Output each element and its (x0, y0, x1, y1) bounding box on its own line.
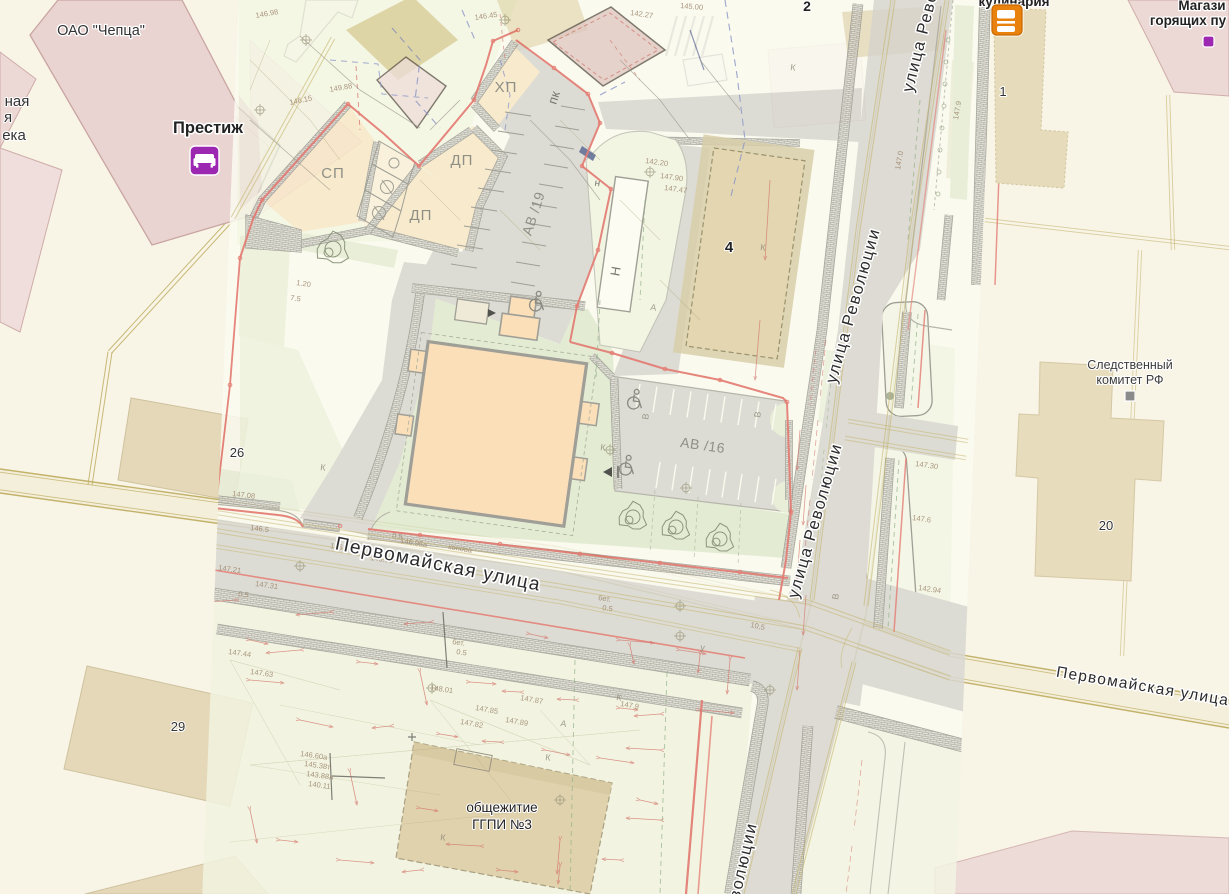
svg-text:Следственный: Следственный (1087, 358, 1173, 372)
svg-text:ОАО "Чепца": ОАО "Чепца" (57, 23, 145, 39)
svg-text:0.5: 0.5 (456, 647, 468, 657)
svg-text:29: 29 (171, 719, 185, 734)
svg-text:комитет РФ: комитет РФ (1096, 373, 1163, 387)
svg-text:4: 4 (725, 239, 734, 256)
svg-text:ДП: ДП (410, 207, 433, 224)
svg-text:2: 2 (803, 0, 811, 14)
svg-text:ХП: ХП (495, 79, 518, 96)
svg-text:общежитие: общежитие (466, 800, 537, 815)
svg-text:26: 26 (230, 445, 244, 460)
svg-text:Престиж: Престиж (173, 119, 243, 137)
svg-text:ная: ная (5, 93, 30, 110)
svg-text:ГГПИ №3: ГГПИ №3 (472, 817, 532, 832)
svg-text:горящих пу: горящих пу (1150, 13, 1227, 28)
svg-text:ПО: ПО (261, 222, 285, 239)
svg-text:0,5: 0,5 (392, 531, 404, 541)
svg-text:0,5: 0,5 (238, 589, 250, 599)
svg-text:СП: СП (321, 165, 345, 182)
svg-text:ДП: ДП (451, 152, 474, 169)
svg-text:1: 1 (999, 84, 1006, 99)
svg-text:0.5: 0.5 (602, 603, 614, 613)
svg-text:бет.: бет. (452, 637, 466, 648)
svg-text:я: я (4, 109, 12, 126)
svg-text:7.5: 7.5 (290, 293, 302, 303)
svg-text:ека: ека (2, 127, 26, 144)
svg-text:Магази: Магази (1178, 0, 1225, 13)
svg-text:20: 20 (1099, 518, 1113, 533)
